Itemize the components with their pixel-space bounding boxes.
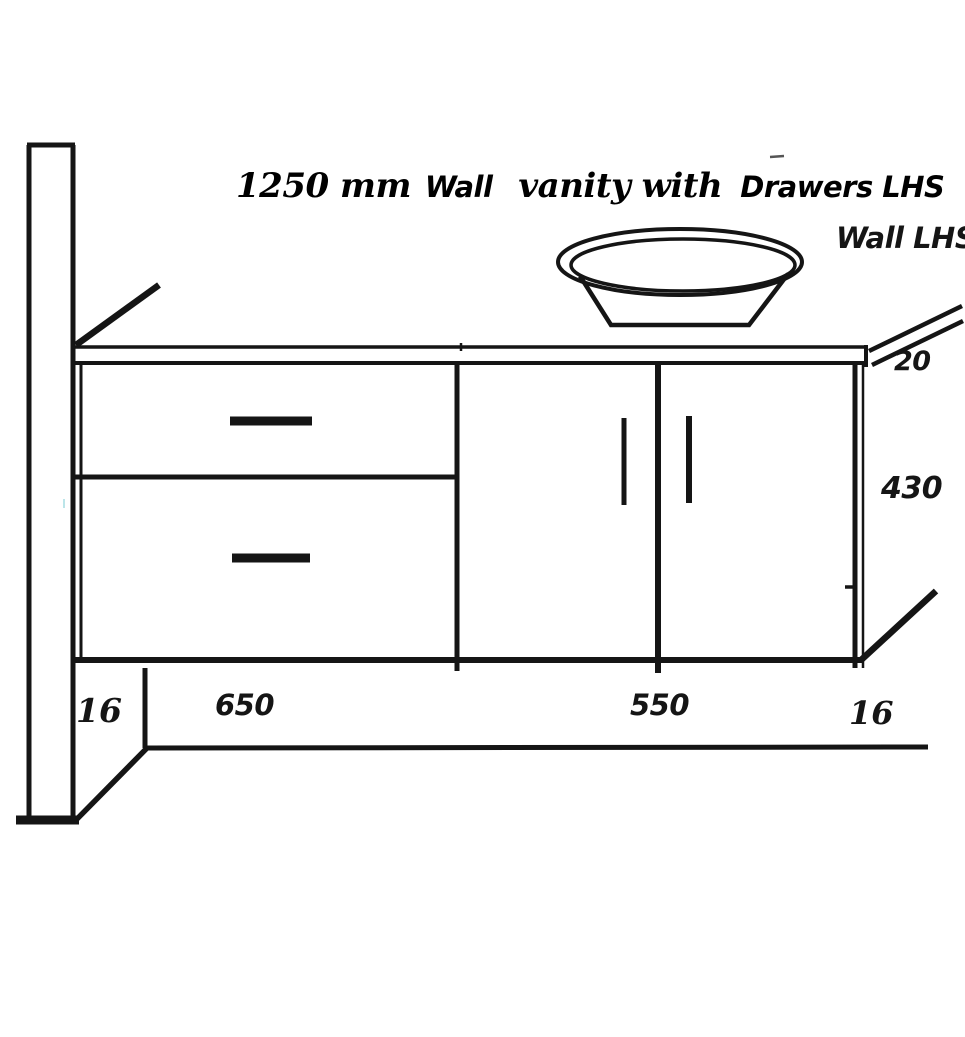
basin-body [580, 274, 788, 325]
right-panel-thickness-label: 16 [849, 697, 894, 729]
left-panel-thickness-label: 16 [76, 694, 122, 727]
wall-side-label: Wall LHS [836, 224, 965, 253]
countertop [75, 343, 867, 367]
title-drawers-text: Drawers LHS [740, 170, 944, 204]
dimension-baseline [147, 747, 928, 748]
cabinet-carcass [72, 363, 864, 673]
vanity-drawing-canvas: 1250 mm Wall vanity with Drawers LHS Wal… [0, 0, 965, 1037]
title-wall-text: Wall [425, 170, 492, 204]
drawer-section-width-label: 650 [215, 691, 274, 720]
drawing-title: 1250 mm Wall vanity with Drawers LHS [236, 166, 944, 206]
vanity-line-drawing [0, 0, 965, 1037]
title-size-text: 1250 mm [236, 166, 411, 206]
perspective-line-bottom-right [860, 591, 936, 661]
vessel-basin [558, 229, 802, 325]
basin-inner-rim [571, 239, 795, 291]
title-vanity-text: vanity with [518, 166, 722, 206]
artifact-dash [770, 156, 784, 157]
door-section-width-label: 550 [630, 691, 689, 720]
perspective-line-top-left [76, 285, 159, 345]
wall-panel [16, 145, 79, 820]
cabinet-height-label: 430 [881, 474, 942, 504]
counter-thickness-label: 20 [894, 348, 931, 375]
perspective-line-bottom-left [77, 748, 147, 819]
